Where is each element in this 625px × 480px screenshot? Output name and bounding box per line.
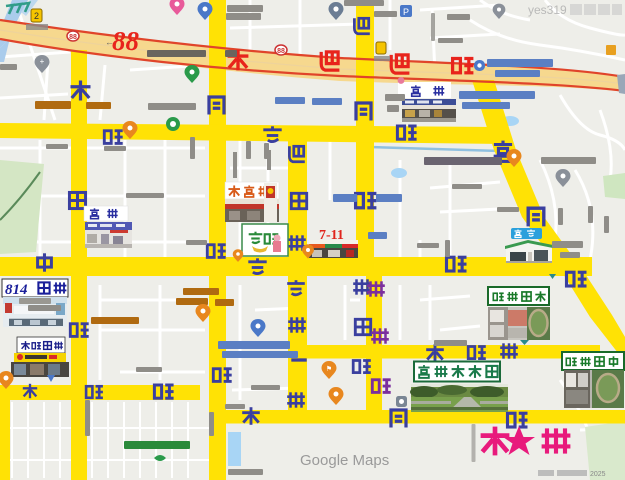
svg-text:yes319: yes319 [528, 3, 567, 17]
svg-text:2025: 2025 [590, 471, 606, 478]
svg-text:88: 88 [277, 48, 285, 55]
svg-text:814: 814 [5, 282, 28, 298]
svg-text:+: + [40, 57, 45, 66]
svg-text:88: 88 [69, 34, 77, 41]
svg-text:2: 2 [34, 11, 39, 21]
svg-text:88: 88 [112, 26, 140, 56]
svg-text:⚑: ⚑ [326, 365, 332, 373]
svg-text:P: P [403, 7, 409, 17]
svg-text:Google Maps: Google Maps [300, 452, 389, 469]
